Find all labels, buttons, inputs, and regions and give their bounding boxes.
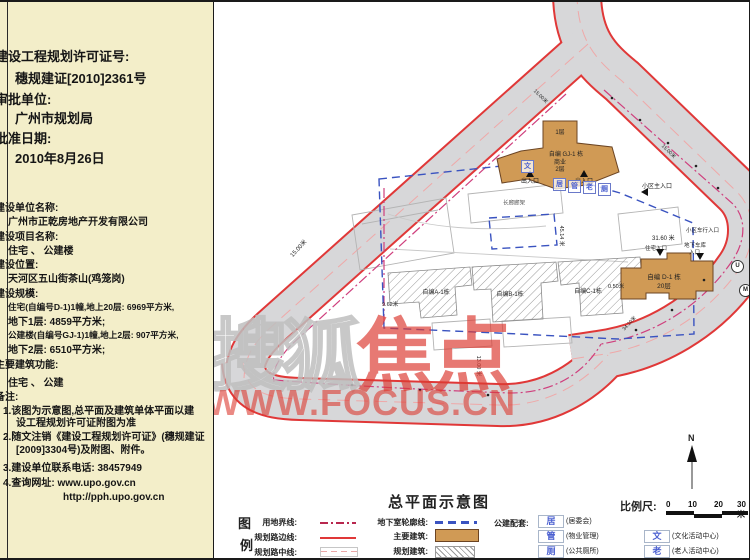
label-main-entrance: 小区主入口 (642, 184, 672, 190)
scale-line-2: 地下1层: 4859平方米; (8, 317, 212, 328)
survey-marker-u: U (731, 260, 744, 273)
legend-road-center-label: 规划路中线: (227, 549, 297, 557)
approver-label: 审批单位: (0, 93, 212, 107)
dim-9-62: 9.62米 (382, 303, 398, 309)
legend-boundary-label: 用地界线: (227, 519, 297, 527)
location-label: 建设位置: (0, 260, 212, 271)
legend-panel: 总平面示意图 图 例 用地界线: 规划路边线: 规划路中线: 地下室轮廓线: 主… (213, 489, 750, 560)
panel-divider (213, 2, 214, 560)
owner-label: 建设单位名称: (0, 203, 212, 214)
dim-0-50: 0.50米 (608, 285, 624, 291)
location-value: 天河区五山街茶山(鸡笼岗) (8, 274, 212, 285)
label-d1-floors: 20层 (657, 284, 671, 291)
project-value: 住宅 、 公建楼 (8, 246, 212, 257)
scalebar-seg-1 (666, 511, 694, 515)
scale-label: 建设规模: (0, 289, 212, 300)
legend-basement-label: 地下室轮廓线: (358, 519, 428, 527)
approval-date-value: 2010年8月26日 (15, 152, 212, 166)
legend-ce-box: 厕 (538, 545, 564, 558)
label-c1: 自编C-1栋 (574, 289, 602, 295)
function-value: 住宅 、 公建 (8, 378, 212, 389)
scale-line-3: 公建楼(自编号GJ-1)1幢,地上2层: 907平方米, (8, 331, 212, 340)
legend-lao-desc: (老人活动中心) (672, 548, 719, 555)
label-b1: 自编B-1栋 (496, 292, 523, 298)
north-label: N (688, 434, 695, 443)
legend-guan-box: 管 (538, 530, 564, 543)
dim-31-60: 31.60 米 (652, 236, 675, 242)
legend-lao-box: 老 (644, 545, 670, 558)
legend-planned-building-swatch (435, 546, 475, 558)
dim-13-00: 13.00 米 (474, 356, 480, 377)
legend-ce-desc: (公共厕所) (566, 548, 599, 555)
project-label: 建设项目名称: (0, 232, 212, 243)
remark-3: 3.建设单位联系电话: 38457949 (3, 463, 212, 474)
public-facility-ce: 厕 (598, 183, 611, 196)
scalebar-label: 比例尺: (620, 502, 657, 513)
north-arrow (687, 445, 697, 489)
legend-ju-box: 居 (538, 515, 564, 528)
remark-2b: [2009]3304号)及附图、附件。 (16, 445, 212, 456)
approver-value: 广州市规划局 (15, 112, 212, 126)
label-corridor: 长廊廊架 (503, 201, 525, 207)
legend-road-edge-label: 规划路边线: (227, 534, 297, 542)
label-a1: 自编A-1栋 (422, 290, 449, 296)
label-gj1-use: 商业 (554, 160, 566, 166)
legend-ju-desc: (居委会) (566, 518, 592, 525)
label-gj1-floors: 2层 (555, 167, 564, 173)
permit-info-sidebar: 建设工程规划许可证号: 穗规建证[2010]2361号 审批单位: 广州市规划局… (0, 2, 213, 560)
remarks-label: 备注: (0, 392, 212, 403)
legend-guan-desc: (物业管理) (566, 533, 599, 540)
label-exit-1: 出入口 (521, 179, 539, 185)
label-garage-entrance-2: 入口 (689, 251, 700, 257)
public-facility-wen: 文 (521, 160, 534, 173)
scale-line-4: 地下2层: 6510平方米; (8, 345, 212, 356)
public-facility-lao: 老 (583, 181, 596, 194)
legend-road-center-swatch (320, 547, 358, 557)
scale-line-1: 住宅(自编号D-1)1幢,地上20层: 6969平方米, (8, 303, 212, 312)
scalebar-seg-3 (722, 511, 748, 515)
remark-4b: http://pph.upo.gov.cn (63, 492, 212, 503)
owner-value: 广州市正乾房地产开发有限公司 (8, 217, 212, 228)
label-car-entrance: 小区车行入口 (686, 229, 719, 235)
public-facility-ju: 居 (553, 178, 566, 191)
legend-road-edge-swatch (320, 537, 356, 539)
planning-permit-page: 自编 GJ-1 栋 商业 2层 1层 自编 D-1 栋 20层 自编A-1栋 自… (0, 0, 750, 560)
remark-1b: 设工程规划许可证附图为准 (16, 418, 212, 429)
label-residence-entrance: 住宅入口 (645, 247, 667, 253)
legend-public-label: 公建配套: (494, 520, 529, 528)
remark-2a: 2.随文注销《建设工程规划许可证》(穗规建证 (3, 432, 212, 443)
dim-45-14: 45.14 米 (557, 226, 563, 247)
function-label: 主要建筑功能: (0, 360, 212, 371)
remark-4a: 4.查询网址: www.upo.gov.cn (3, 478, 212, 489)
road-surfaces (243, 2, 750, 405)
permit-no-label: 建设工程规划许可证号: (0, 50, 212, 64)
legend-basement-swatch (435, 521, 477, 524)
legend-wen-desc: (文化活动中心) (672, 533, 719, 540)
scalebar-seg-2 (694, 514, 722, 518)
permit-no-value: 穗规建证[2010]2361号 (15, 72, 212, 86)
legend-main-building-label: 主要建筑: (358, 533, 428, 541)
legend-boundary-swatch (320, 522, 356, 524)
approval-date-label: 批准日期: (0, 132, 212, 146)
label-gj1-name: 自编 GJ-1 栋 (549, 152, 583, 158)
legend-wen-box: 文 (644, 530, 670, 543)
scalebar-tick-20: 20 (714, 500, 723, 509)
plan-title: 总平面示意图 (388, 495, 490, 510)
legend-planned-building-label: 规划建筑: (358, 548, 428, 556)
legend-main-building-swatch (435, 529, 479, 542)
remark-1a: 1.该图为示意图,总平面及建筑单体平面以建 (3, 406, 212, 417)
label-garage-entrance-1: 地下车库 (684, 244, 706, 250)
public-facility-guan: 管 (568, 180, 581, 193)
label-gj1-top-floor: 1层 (555, 130, 564, 136)
label-d1-name: 自编 D-1 栋 (647, 275, 681, 282)
scalebar-tick-0: 0 (666, 500, 670, 509)
scalebar-tick-10: 10 (688, 500, 697, 509)
